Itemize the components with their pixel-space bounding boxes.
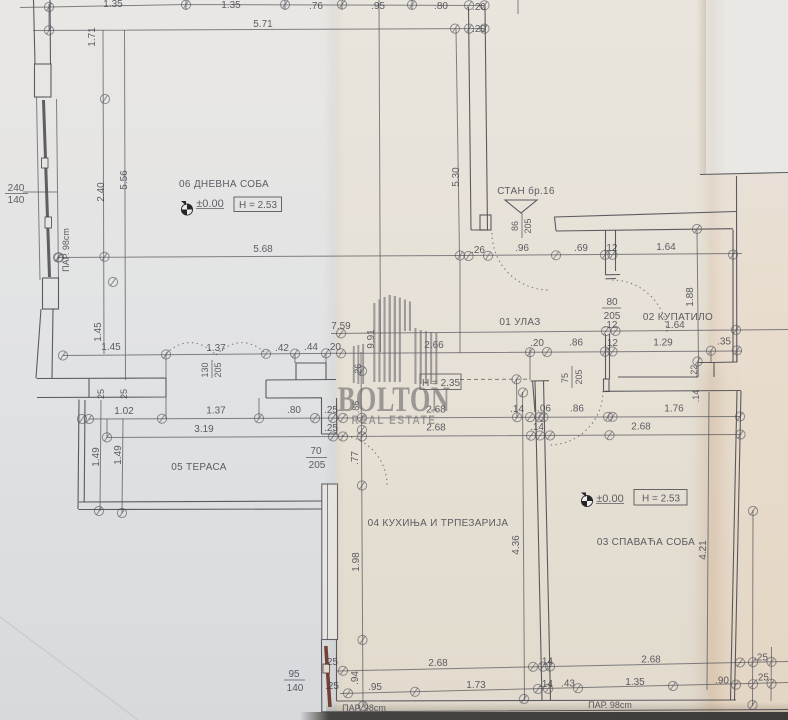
svg-text:1.49: 1.49 xyxy=(113,445,124,465)
svg-text:.14: .14 xyxy=(510,404,524,415)
svg-text:ПАР. 98cm: ПАР. 98cm xyxy=(342,703,386,713)
svg-text:03 СПАВАЋА СОБА: 03 СПАВАЋА СОБА xyxy=(597,537,695,548)
svg-text:1.64: 1.64 xyxy=(656,242,676,253)
svg-text:.20: .20 xyxy=(472,24,486,35)
svg-text:1.35: 1.35 xyxy=(103,0,123,10)
svg-text:75: 75 xyxy=(560,373,570,383)
svg-text:.80: .80 xyxy=(287,405,301,416)
svg-text:.80: .80 xyxy=(434,1,448,12)
svg-text:2.68: 2.68 xyxy=(428,658,448,669)
svg-text:1.73: 1.73 xyxy=(466,680,486,691)
svg-text:ПАР. 98cm: ПАР. 98cm xyxy=(61,228,71,272)
svg-text:95: 95 xyxy=(288,669,300,680)
svg-text:240: 240 xyxy=(8,183,25,194)
svg-text:205: 205 xyxy=(309,460,326,471)
svg-text:1.71: 1.71 xyxy=(87,27,98,47)
svg-text:Н = 2.53: Н = 2.53 xyxy=(642,494,681,505)
svg-text:BOLTON: BOLTON xyxy=(338,379,450,419)
svg-text:1.98: 1.98 xyxy=(351,552,362,572)
svg-text:06 ДНЕВНА СОБА: 06 ДНЕВНА СОБА xyxy=(179,179,269,190)
svg-text:.26: .26 xyxy=(471,245,485,256)
svg-text:3.19: 3.19 xyxy=(194,424,214,435)
svg-text:5.71: 5.71 xyxy=(253,19,273,30)
svg-text:2.68: 2.68 xyxy=(631,422,651,433)
svg-text:1.37: 1.37 xyxy=(206,406,226,417)
svg-text:1.35: 1.35 xyxy=(625,677,645,688)
svg-text:.20: .20 xyxy=(472,2,486,13)
svg-text:.06: .06 xyxy=(537,404,551,415)
svg-text:.20: .20 xyxy=(530,338,544,349)
svg-text:.77: .77 xyxy=(350,451,361,465)
svg-text:1.35: 1.35 xyxy=(221,0,241,11)
svg-text:70: 70 xyxy=(310,446,322,457)
svg-text:.14: .14 xyxy=(539,657,553,668)
svg-text:5.68: 5.68 xyxy=(253,244,273,255)
svg-text:.25: .25 xyxy=(755,673,769,684)
svg-text:.14: .14 xyxy=(539,679,553,690)
svg-text:4.21: 4.21 xyxy=(698,540,709,560)
svg-text:140: 140 xyxy=(287,683,304,694)
svg-text:.95: .95 xyxy=(368,682,382,693)
svg-text:±0.00: ±0.00 xyxy=(596,493,623,505)
svg-text:80: 80 xyxy=(606,297,618,308)
svg-text:05 ТЕРАСА: 05 ТЕРАСА xyxy=(171,462,227,473)
svg-text:04 КУХИЊА И ТРПЕЗАРИЈА: 04 КУХИЊА И ТРПЕЗАРИЈА xyxy=(368,518,509,529)
svg-text:.22: .22 xyxy=(689,365,699,378)
svg-text:.76: .76 xyxy=(309,1,323,12)
svg-text:.25: .25 xyxy=(324,657,338,668)
svg-text:.42: .42 xyxy=(275,343,289,354)
svg-text:1.29: 1.29 xyxy=(653,338,673,349)
svg-text:140: 140 xyxy=(8,195,25,206)
svg-text:.14: .14 xyxy=(530,422,544,433)
svg-text:.96: .96 xyxy=(515,243,529,254)
svg-text:.94: .94 xyxy=(350,671,361,685)
svg-text:.14: .14 xyxy=(691,390,701,403)
svg-text:.44: .44 xyxy=(304,342,318,353)
svg-text:.43: .43 xyxy=(561,679,575,690)
svg-text:.90: .90 xyxy=(715,676,729,687)
svg-text:REAL ESTATE: REAL ESTATE xyxy=(352,414,437,427)
svg-text:205: 205 xyxy=(574,369,584,384)
svg-text:1.45: 1.45 xyxy=(93,322,104,342)
svg-text:±0.00: ±0.00 xyxy=(196,198,223,210)
svg-text:.12: .12 xyxy=(604,320,618,331)
svg-text:25: 25 xyxy=(96,389,106,399)
svg-text:.25: .25 xyxy=(325,681,339,692)
svg-text:.12: .12 xyxy=(604,243,618,254)
svg-text:.20: .20 xyxy=(327,342,341,353)
svg-text:86: 86 xyxy=(510,221,520,231)
svg-text:5.30: 5.30 xyxy=(451,167,462,187)
svg-text:.95: .95 xyxy=(371,1,385,12)
svg-text:1.49: 1.49 xyxy=(91,447,102,467)
svg-text:7.59: 7.59 xyxy=(331,321,351,332)
svg-text:.35: .35 xyxy=(717,337,731,348)
svg-text:.25: .25 xyxy=(324,405,338,416)
svg-text:.86: .86 xyxy=(570,404,584,415)
svg-text:01 УЛАЗ: 01 УЛАЗ xyxy=(499,317,540,328)
svg-text:205: 205 xyxy=(523,218,533,233)
svg-text:1.64: 1.64 xyxy=(665,320,685,331)
svg-text:1.88: 1.88 xyxy=(685,287,696,307)
svg-text:205: 205 xyxy=(213,362,223,377)
svg-text:.25: .25 xyxy=(324,423,338,434)
svg-text:1.02: 1.02 xyxy=(114,406,134,417)
svg-text:1.76: 1.76 xyxy=(664,404,684,415)
svg-text:Н = 2.53: Н = 2.53 xyxy=(239,200,278,211)
svg-text:2.68: 2.68 xyxy=(641,655,661,666)
svg-text:1.45: 1.45 xyxy=(101,342,121,353)
svg-text:СТАН бр.16: СТАН бр.16 xyxy=(497,185,555,197)
svg-text:130: 130 xyxy=(200,362,210,377)
svg-text:1.37: 1.37 xyxy=(206,343,226,354)
svg-text:5.56: 5.56 xyxy=(119,170,130,190)
svg-text:.25: .25 xyxy=(754,653,768,664)
svg-text:.69: .69 xyxy=(574,243,588,254)
svg-text:25: 25 xyxy=(119,389,129,399)
svg-text:.86: .86 xyxy=(569,338,583,349)
svg-text:2.40: 2.40 xyxy=(96,182,107,202)
svg-text:.12: .12 xyxy=(604,338,618,349)
svg-text:4.36: 4.36 xyxy=(511,535,522,555)
svg-text:2.66: 2.66 xyxy=(424,340,444,351)
svg-text:ПАР. 98cm: ПАР. 98cm xyxy=(588,700,632,710)
